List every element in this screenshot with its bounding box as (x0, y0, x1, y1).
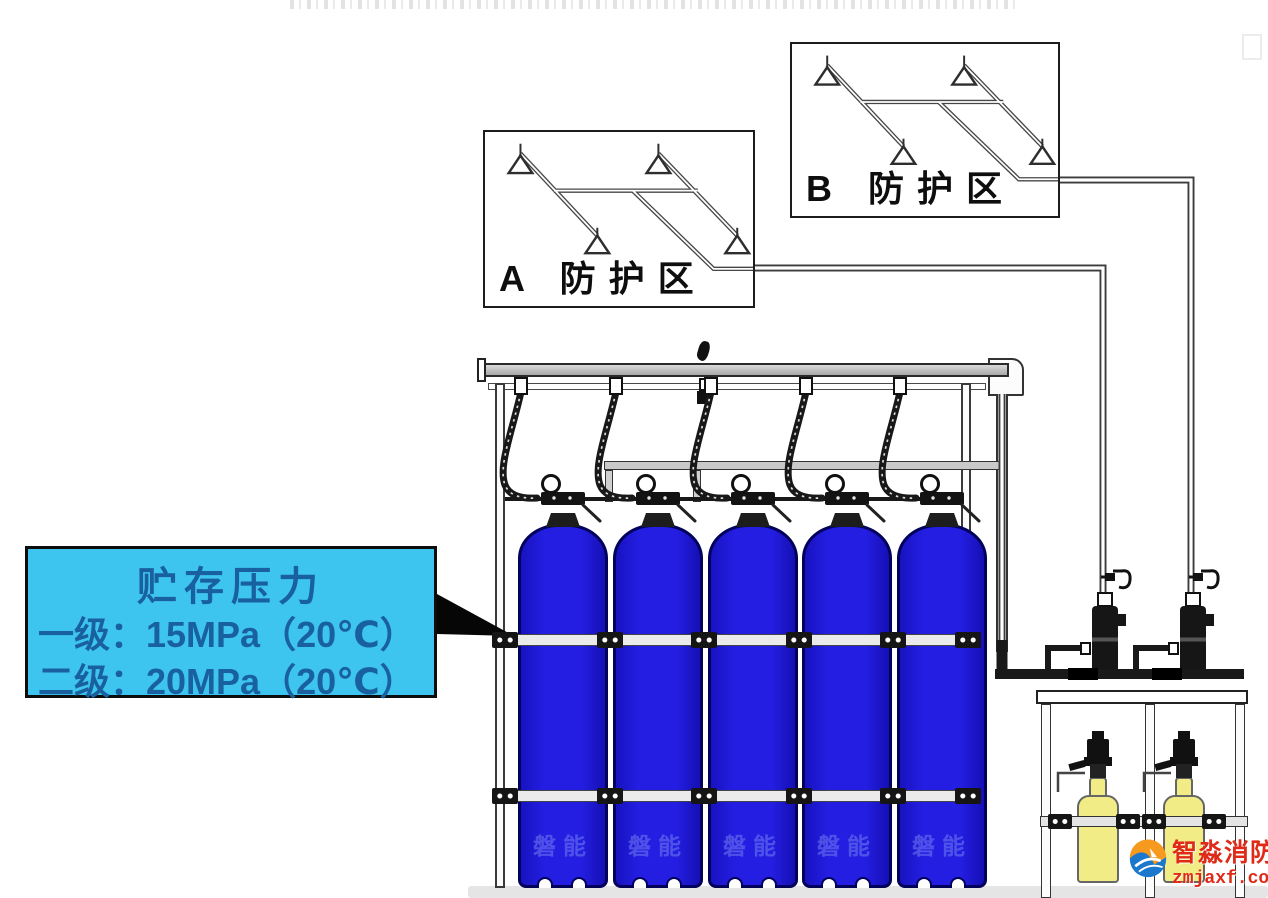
flex-hose (882, 392, 916, 498)
rack-clamp (955, 632, 981, 648)
frame-top-beam (488, 383, 986, 390)
manifold-end-cap (477, 358, 486, 382)
pilot-pipe-drop (693, 470, 701, 502)
flex-hose (503, 392, 537, 498)
container-valve (636, 476, 695, 528)
rack-clamp (597, 632, 623, 648)
hose-connector (609, 377, 623, 395)
safety-valve-icon (695, 340, 711, 362)
nozzle-icon (725, 236, 749, 254)
rack-clamp (786, 632, 812, 648)
callout-title: 贮存压力 (28, 554, 434, 612)
solenoid-actuator (1087, 739, 1109, 759)
protection-zone-b: B 防护区 (790, 42, 1060, 218)
branch-fitting (1168, 642, 1179, 655)
rack-clamp (1116, 814, 1140, 829)
pressure-switch-icon (1101, 571, 1130, 588)
agent-cylinder: 磐能 (518, 524, 608, 888)
rack-clamp (1142, 814, 1166, 829)
cropped-corner-remnant (1242, 34, 1262, 60)
starter-pilot-line (1058, 773, 1085, 792)
flex-hose (788, 392, 822, 498)
hose-connector (893, 377, 907, 395)
solenoid-actuator (1176, 764, 1192, 778)
solenoid-actuator (1090, 764, 1106, 778)
rack-clamp (691, 632, 717, 648)
pipe-joint (1152, 668, 1182, 680)
selector-valve-knob (1205, 614, 1214, 626)
flex-hose (598, 392, 632, 498)
cropped-text-remnant (290, 0, 1020, 9)
diagram-canvas: A 防护区 B 防护区 (0, 0, 1268, 898)
protection-zone-a: A 防护区 (483, 130, 755, 308)
container-valve (825, 476, 884, 528)
container-valve (541, 476, 600, 528)
rack-clamp (880, 632, 906, 648)
actuator-lever (1154, 760, 1171, 771)
watermark-logo: 智淼消防 zmjaxf.com (1128, 833, 1268, 895)
agent-cylinder: 磐能 (708, 524, 798, 888)
rack-clamp (492, 788, 518, 804)
nozzles (815, 56, 1054, 164)
zone-a-label: A 防护区 (499, 250, 707, 302)
logo-name: 智淼消防 (1172, 833, 1268, 869)
zone-b-label: B 防护区 (806, 160, 1015, 212)
cylinder-watermark: 磐能 (805, 827, 889, 861)
cylinder-watermark: 磐能 (711, 827, 795, 861)
selector-valve-connector (1185, 592, 1201, 607)
callout-line-1: 一级：15MPa（20℃） (28, 612, 434, 659)
cylinder-watermark: 磐能 (616, 827, 700, 861)
pilot-table (1036, 690, 1248, 704)
rack-clamp (597, 788, 623, 804)
rack-clamp (691, 788, 717, 804)
starter-cylinder (1077, 795, 1119, 883)
hose-connector (514, 377, 528, 395)
rack-clamp (1048, 814, 1072, 829)
selector-valve-a (1092, 606, 1118, 674)
hose-connector (704, 377, 718, 395)
pilot-pipe-drop (605, 470, 613, 502)
selector-valve-connector (1097, 592, 1113, 607)
logo-site: zmjaxf.com (1172, 869, 1268, 889)
actuator-lever (1068, 760, 1085, 771)
pilot-pipe (604, 461, 1004, 470)
cylinder-watermark: 磐能 (900, 827, 984, 861)
agent-cylinder: 磐能 (897, 524, 987, 888)
selector-valve-b (1180, 606, 1206, 674)
branch-fitting (1080, 642, 1091, 655)
rack-clamp (880, 788, 906, 804)
agent-cylinder: 磐能 (802, 524, 892, 888)
manifold-drop-pipe (996, 394, 1008, 652)
solenoid-actuator (1173, 739, 1195, 759)
hose-connector (799, 377, 813, 395)
callout-line-2: 二级：20MPa（20℃） (28, 659, 434, 706)
rack-clamp (492, 632, 518, 648)
zone-b-feed-pipe (1060, 180, 1191, 607)
rack-clamp (1202, 814, 1226, 829)
cylinder-watermark: 磐能 (521, 827, 605, 861)
table-leg (1041, 704, 1051, 898)
discharge-manifold (481, 363, 1009, 377)
nozzle-icon (1031, 146, 1054, 163)
storage-pressure-callout: 贮存压力 一级：15MPa（20℃） 二级：20MPa（20℃） (25, 546, 437, 698)
rack-clamp (955, 788, 981, 804)
agent-cylinder: 磐能 (613, 524, 703, 888)
container-valve (731, 476, 790, 528)
logo-text: 智淼消防 zmjaxf.com (1172, 833, 1268, 889)
selector-valve-knob (1117, 614, 1126, 626)
logo-icon (1128, 839, 1168, 879)
pressure-switch-icon (1189, 571, 1218, 588)
nozzles (509, 144, 749, 253)
rack-clamp (786, 788, 812, 804)
